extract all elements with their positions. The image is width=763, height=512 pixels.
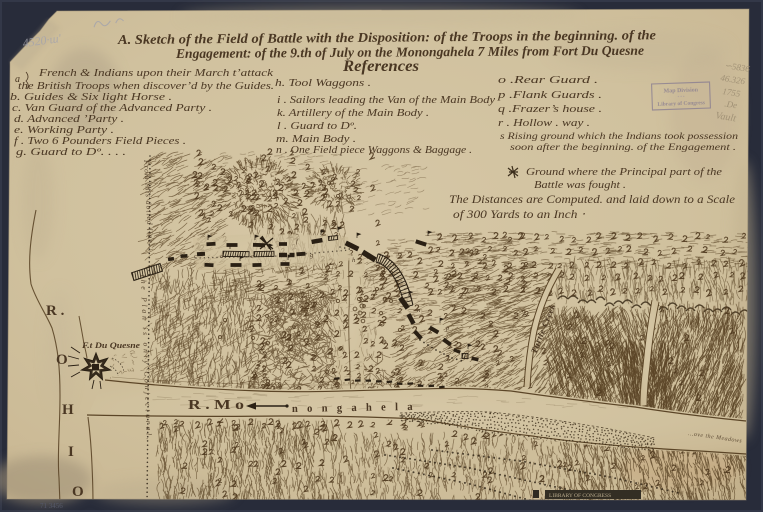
svg-text:i . Sailors leading the Van of: i . Sailors leading the Van of the Main …	[277, 95, 496, 106]
svg-text:s Rising ground which the Ind: s Rising ground which the Indians took p…	[500, 132, 738, 142]
svg-text:g. Guard to Dº. . . .: g. Guard to Dº. . . .	[16, 147, 126, 158]
svg-text:of 300 Yards to an Inch ‧: of 300 Yards to an Inch ‧	[453, 209, 585, 221]
svg-text:H: H	[62, 402, 74, 418]
svg-text:q .Frazer’s house .: q .Frazer’s house .	[498, 103, 602, 115]
svg-text:French & Indians upon their Ma: French & Indians upon their March t’atta…	[38, 68, 274, 79]
svg-text:the British Troops when discov: the British Troops when discover’d by th…	[18, 81, 274, 92]
svg-text:a: a	[15, 74, 20, 85]
svg-text:The Distances are Computed. an: The Distances are Computed. and laid dow…	[449, 194, 735, 206]
svg-text:References: References	[342, 58, 419, 75]
svg-text:Ground where the Principal par: Ground where the Principal part of the	[526, 166, 722, 178]
svg-text:p .Flank Guards .: p .Flank Guards .	[497, 89, 602, 101]
svg-text:O: O	[56, 352, 68, 368]
svg-text:b. Guides & Six light Horse .: b. Guides & Six light Horse .	[10, 92, 172, 103]
svg-text:e: e	[251, 253, 254, 260]
svg-text:f . Two 6 Pounders Field Piece: f . Two 6 Pounders Field Pieces .	[14, 136, 186, 147]
svg-text:n: n	[417, 307, 420, 314]
svg-text:LIBRARY OF CONGRESS: LIBRARY OF CONGRESS	[549, 493, 611, 499]
svg-text:I: I	[68, 444, 74, 460]
svg-text:soon after the beginning. of t: soon after the beginning. of the Engagem…	[510, 142, 736, 153]
svg-text:k. Artillery of the Main Body: k. Artillery of the Main Body .	[277, 108, 429, 119]
svg-text:c. Van Guard of the Advanced P: c. Van Guard of the Advanced Party .	[12, 103, 212, 114]
svg-text:Map Division: Map Division	[663, 87, 698, 94]
svg-text:h. Tool Waggons .: h. Tool Waggons .	[275, 78, 371, 89]
svg-text:n o n g a h e l a: n o n g a h e l a	[292, 401, 416, 415]
svg-text:l . Guard to Dº.: l . Guard to Dº.	[277, 121, 357, 132]
svg-text:F.t Du Quesne: F.t Du Quesne	[81, 340, 140, 350]
svg-text:* * *: * * *	[677, 95, 684, 99]
svg-text:o .Rear Guard .: o .Rear Guard .	[498, 74, 598, 86]
svg-text:m: m	[385, 253, 390, 260]
svg-text:r . Hollow . way .: r . Hollow . way .	[498, 117, 590, 129]
svg-text:R .: R .	[46, 303, 65, 319]
svg-text:.De: .De	[724, 99, 738, 111]
svg-text:R . M o: R . M o	[188, 398, 244, 413]
svg-text:71 3456: 71 3456	[40, 502, 63, 510]
svg-text:m. Main Body .: m. Main Body .	[276, 134, 356, 145]
svg-text:e. Working Party .: e. Working Party .	[14, 125, 114, 136]
svg-text:d. Advanced ’Party .: d. Advanced ’Party .	[14, 114, 124, 125]
svg-text:c: c	[194, 253, 197, 260]
svg-text:O: O	[72, 484, 84, 500]
svg-text:h: h	[352, 257, 355, 264]
svg-text:Battle was fought .: Battle was fought .	[534, 179, 626, 191]
